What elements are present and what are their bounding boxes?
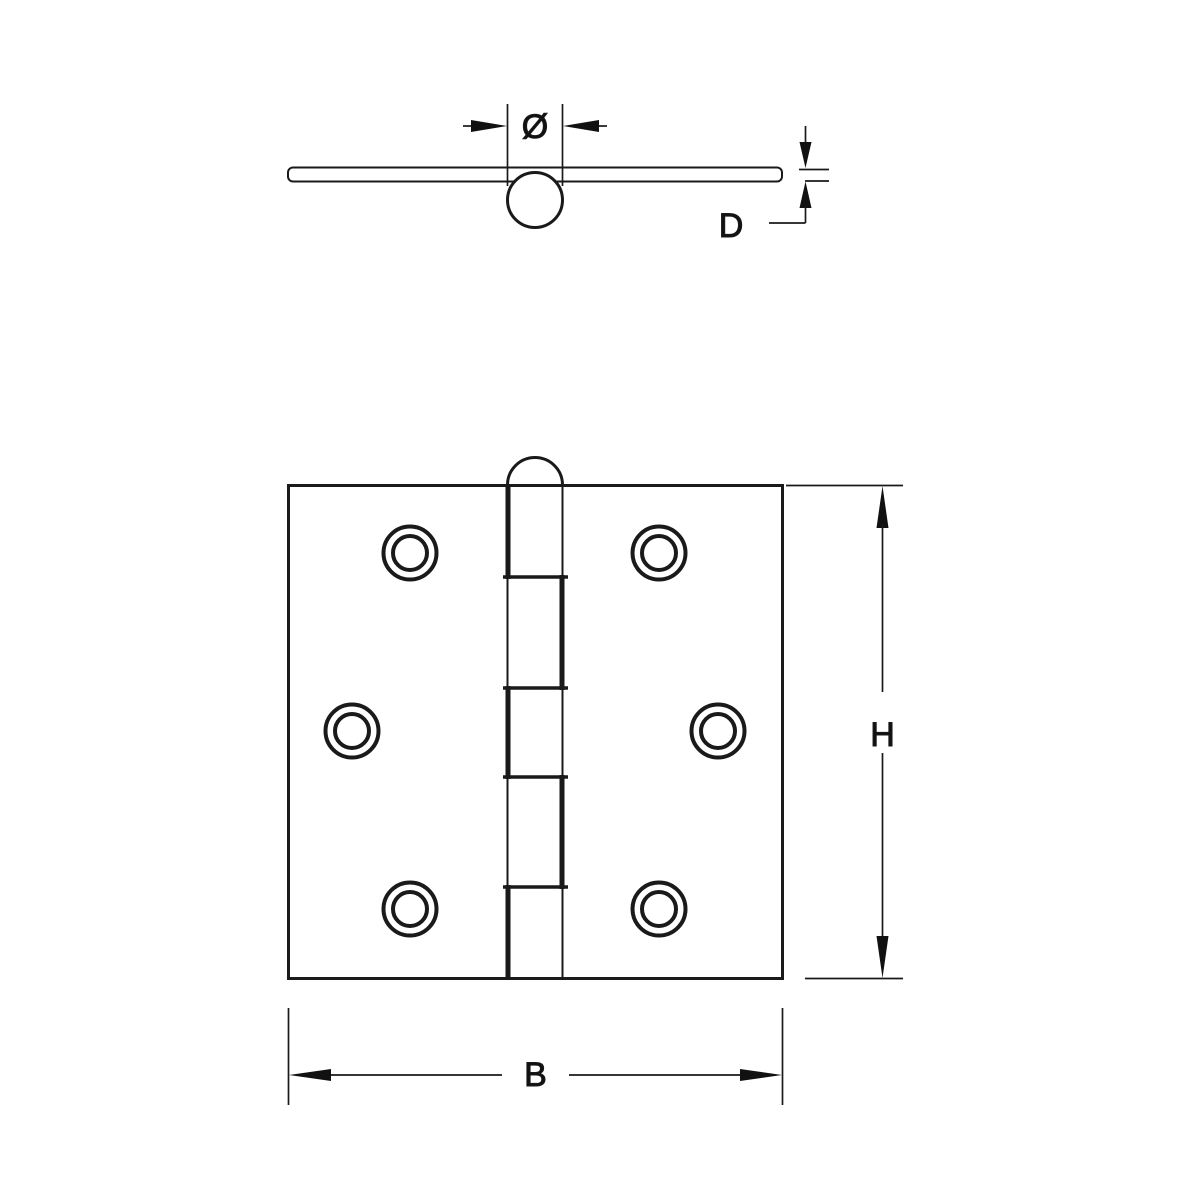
screw-hole-inner-ring: [642, 536, 676, 570]
screw-hole-inner-ring: [335, 714, 369, 748]
drawing-canvas: Ø D: [0, 0, 1200, 1200]
height-arrow-up: [877, 486, 889, 528]
screw-hole-middle-left: [326, 705, 379, 758]
width-arrow-right: [740, 1069, 782, 1081]
thickness-arrow-up: [800, 182, 812, 209]
screw-hole-inner-ring: [393, 892, 427, 926]
screw-hole-bottom-left: [384, 883, 437, 936]
height-arrow-down: [877, 936, 889, 978]
thickness-arrow-down: [800, 142, 812, 168]
pin-diameter-label: Ø: [522, 108, 548, 146]
pin-diameter-arrow-left: [471, 120, 507, 132]
front-view-elevation: H B: [289, 458, 904, 1106]
screw-hole-inner-ring: [701, 714, 735, 748]
screw-hole-top-right: [633, 527, 686, 580]
thickness-label: D: [719, 207, 744, 245]
pin-diameter-arrow-right: [563, 120, 599, 132]
pin-barrel-circle: [508, 173, 563, 228]
screw-hole-inner-ring: [642, 892, 676, 926]
height-label: H: [870, 716, 895, 754]
top-view-side-profile: Ø D: [288, 104, 829, 245]
pin-head-dome: [508, 458, 563, 486]
hinge-technical-drawing: Ø D: [0, 0, 1200, 1200]
screw-hole-inner-ring: [393, 536, 427, 570]
screw-hole-middle-right: [692, 705, 745, 758]
width-label: B: [524, 1056, 547, 1094]
screw-hole-bottom-right: [633, 883, 686, 936]
width-arrow-left: [289, 1069, 331, 1081]
screw-hole-top-left: [384, 527, 437, 580]
